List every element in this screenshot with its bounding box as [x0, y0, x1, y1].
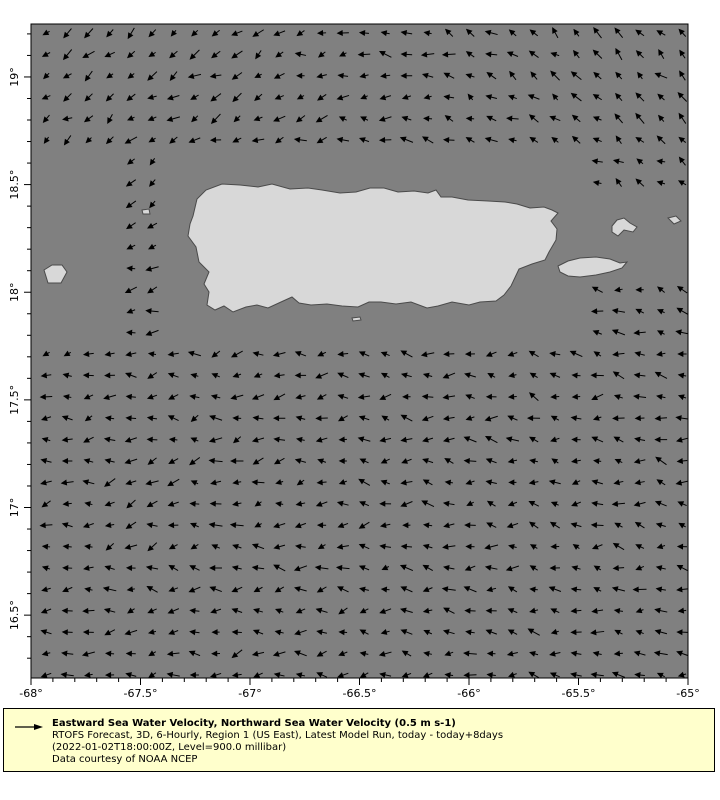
y-tick-label: 18° [8, 282, 21, 302]
y-tick-label: 18.5° [8, 170, 21, 200]
islet-south [352, 317, 361, 321]
figure: -68°-67.5°-67°-66.5°-66°-65.5°-65°19°18.… [0, 0, 720, 800]
x-tick-label: -67° [238, 687, 261, 700]
reference-arrow-icon [14, 723, 44, 731]
legend-timestamp: (2022-01-02T18:00:00Z, Level=900.0 milli… [52, 742, 503, 754]
legend-text: Eastward Sea Water Velocity, Northward S… [52, 709, 503, 766]
legend-subtitle: RTOFS Forecast, 3D, 6-Hourly, Region 1 (… [52, 730, 503, 742]
legend-courtesy: Data courtesy of NOAA NCEP [52, 754, 503, 766]
ocean [31, 24, 688, 678]
x-tick-label: -68° [19, 687, 42, 700]
legend-box: Eastward Sea Water Velocity, Northward S… [3, 708, 715, 772]
y-tick-label: 17° [8, 498, 21, 518]
x-tick-label: -65° [676, 687, 699, 700]
x-tick-label: -65.5° [562, 687, 596, 700]
island-desecheo [142, 209, 150, 214]
legend-title: Eastward Sea Water Velocity, Northward S… [52, 718, 503, 730]
y-tick-label: 17.5° [8, 385, 21, 415]
island-puerto-rico [188, 184, 558, 312]
x-tick-label: -66.5° [343, 687, 377, 700]
x-tick-label: -67.5° [124, 687, 158, 700]
x-tick-label: -66° [457, 687, 480, 700]
y-tick-label: 16.5° [8, 600, 21, 630]
map-plot: -68°-67.5°-67°-66.5°-66°-65.5°-65°19°18.… [0, 0, 720, 705]
y-tick-label: 19° [8, 67, 21, 87]
